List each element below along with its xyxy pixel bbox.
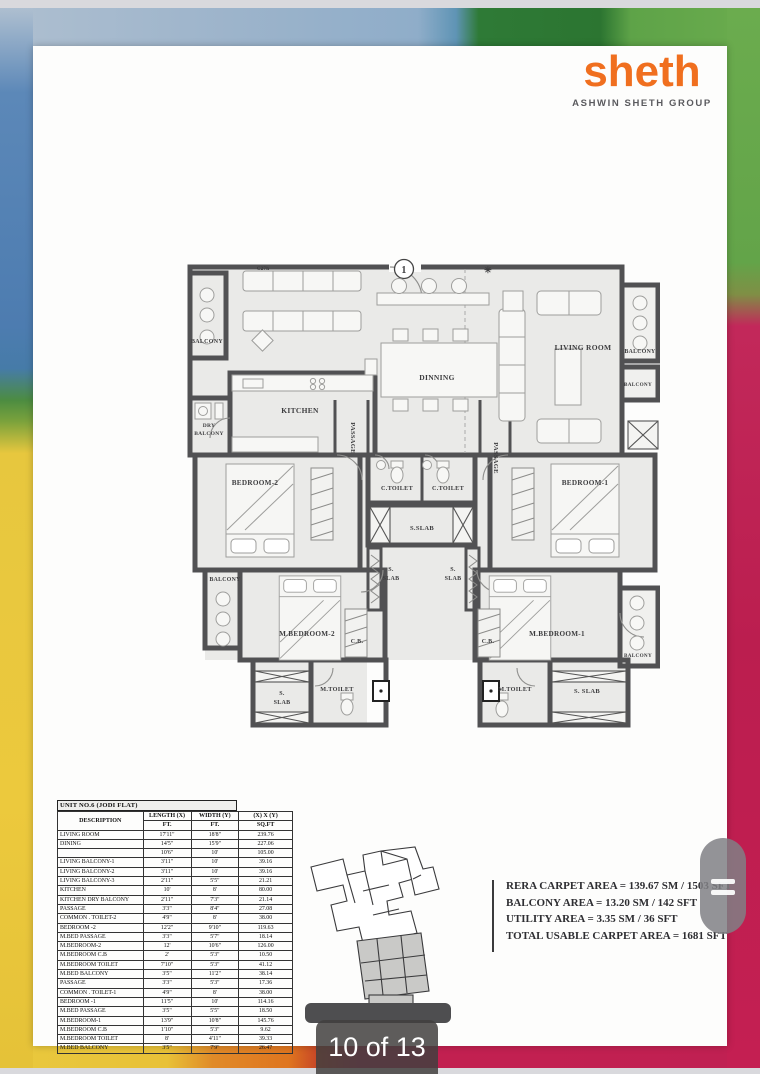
col-area-unit: SQ.FT bbox=[239, 821, 293, 830]
page-indicator: 10 of 13 bbox=[316, 1020, 438, 1074]
handle-bar-icon bbox=[711, 890, 735, 895]
room-label: ✳ bbox=[484, 265, 492, 275]
summary-divider bbox=[492, 880, 494, 952]
key-plan-outline bbox=[311, 847, 439, 943]
floor-plan: 1 bbox=[185, 253, 660, 733]
key-plan bbox=[303, 845, 453, 1023]
table-row: M.BEDROOM-113'9"10'8"145.76 bbox=[58, 1016, 293, 1025]
table-row: M.BED PASSAGE3'5"5'5"18.50 bbox=[58, 1007, 293, 1016]
watercolor-border-left bbox=[0, 8, 33, 1068]
col-width: WIDTH (Y) bbox=[191, 812, 239, 821]
col-description: DESCRIPTION bbox=[58, 812, 144, 831]
summary-line: RERA CARPET AREA = 139.67 SM / 1503 SFT bbox=[506, 878, 718, 895]
col-length-unit: FT. bbox=[143, 821, 191, 830]
room-label: PASSAGE bbox=[349, 422, 356, 454]
table-row: 10'6"10'105.00 bbox=[58, 849, 293, 858]
room-label: DINNING bbox=[419, 373, 454, 382]
room-label: C27h bbox=[257, 267, 270, 272]
room-label: C.TOILET bbox=[381, 485, 414, 492]
table-row: M.BEDROOM TOILET8'4'11"39.33 bbox=[58, 1035, 293, 1044]
room-label: BEDROOM-2 bbox=[232, 479, 279, 487]
table-row: BEDROOM -212'2"9'10"119.63 bbox=[58, 923, 293, 932]
room-label: BALCONY bbox=[209, 577, 241, 583]
viewer-handle-button[interactable] bbox=[700, 838, 746, 934]
room-label: C.B. bbox=[482, 639, 495, 645]
brand-tagline: ASHWIN SHETH GROUP bbox=[563, 98, 721, 109]
table-row: M.BEDROOM C.B2'5'3"10.50 bbox=[58, 951, 293, 960]
room-label: SLAB bbox=[445, 576, 462, 582]
room-label: BALCONY bbox=[194, 431, 224, 437]
room-label: SLAB bbox=[383, 576, 400, 582]
col-width-unit: FT. bbox=[191, 821, 239, 830]
area-table: DESCRIPTION LENGTH (X) WIDTH (Y) (X) X (… bbox=[57, 811, 293, 1054]
room-label: S. bbox=[388, 567, 394, 573]
room-label: PASSAGE bbox=[492, 442, 499, 474]
rera-summary: RERA CARPET AREA = 139.67 SM / 1503 SFTB… bbox=[492, 878, 718, 944]
room-label: S.SLAB bbox=[410, 525, 434, 532]
room-label: BEDROOM-1 bbox=[562, 479, 609, 487]
table-row: LIVING ROOM17'11"18'8"239.76 bbox=[58, 830, 293, 839]
table-row: DINING14'5"15'9"227.06 bbox=[58, 839, 293, 848]
table-row: M.BED BALCONY3'5"11'2"38.14 bbox=[58, 970, 293, 979]
table-row: KITCHEN DRY BALCONY2'11"7'3"21.14 bbox=[58, 895, 293, 904]
summary-line: UTILITY AREA = 3.35 SM / 36 SFT bbox=[506, 911, 718, 928]
room-label: S. SLAB bbox=[574, 688, 600, 695]
room-label: S. bbox=[450, 567, 456, 573]
room-label: DRY bbox=[203, 423, 216, 429]
table-row: BEDROOM -111'5"10'114.16 bbox=[58, 997, 293, 1006]
table-row: LIVING BALCONY-13'11"10'39.16 bbox=[58, 858, 293, 867]
room-label: SLAB bbox=[274, 700, 291, 706]
summary-lines: RERA CARPET AREA = 139.67 SM / 1503 SFTB… bbox=[506, 878, 718, 944]
room-label: BALCONY bbox=[624, 382, 652, 388]
table-row: M.BEDROOM-212'10'6"126.00 bbox=[58, 942, 293, 951]
unit-number: 1 bbox=[401, 265, 406, 276]
handle-bar-icon bbox=[711, 879, 735, 884]
room-label: S. bbox=[279, 691, 285, 697]
table-row: M.BED BALCONY3'5"7'9"26.47 bbox=[58, 1044, 293, 1053]
summary-line: TOTAL USABLE CARPET AREA = 1681 SFT bbox=[506, 928, 718, 945]
table-row: LIVING BALCONY-32'11"5'5"21.21 bbox=[58, 877, 293, 886]
table-row: M.BED PASSAGE3'3"5'7"18.14 bbox=[58, 932, 293, 941]
room-label: BALCONY bbox=[624, 653, 652, 659]
room-label: C.TOILET bbox=[432, 485, 465, 492]
room-label: LIVING ROOM bbox=[555, 343, 612, 352]
room-label: BALCONY bbox=[624, 349, 656, 355]
room-label: C.B. bbox=[351, 639, 364, 645]
area-table-body: LIVING ROOM17'11"18'8"239.76DINING14'5"1… bbox=[58, 830, 293, 1053]
room-label: M.BEDROOM-1 bbox=[529, 630, 585, 638]
table-row: COMMON . TOILET-14'9"8'38.00 bbox=[58, 988, 293, 997]
col-area: (X) X (Y) bbox=[239, 812, 293, 821]
table-title: UNIT NO.6 (JODI FLAT) bbox=[57, 800, 237, 811]
room-label: KITCHEN bbox=[281, 406, 319, 415]
table-row: PASSAGE3'3"5'3"17.36 bbox=[58, 979, 293, 988]
area-statement: UNIT NO.6 (JODI FLAT) DESCRIPTION LENGTH… bbox=[57, 800, 293, 1054]
table-row: KITCHEN10'8'80.00 bbox=[58, 886, 293, 895]
room-label: M.BEDROOM-2 bbox=[279, 630, 335, 638]
room-label: M.TOILET bbox=[498, 686, 532, 693]
key-plan-unit-highlight bbox=[357, 933, 429, 1007]
table-row: LIVING BALCONY-23'11"10'39.16 bbox=[58, 867, 293, 876]
summary-line: BALCONY AREA = 13.20 SM / 142 SFT bbox=[506, 895, 718, 912]
watercolor-border-top bbox=[0, 8, 760, 46]
sheth-logo: sheth bbox=[563, 50, 721, 94]
viewer-stage: sheth ASHWIN SHETH GROUP bbox=[0, 0, 760, 1074]
table-row: M.BEDROOM C.B1'10"5'3"9.62 bbox=[58, 1025, 293, 1034]
table-row: COMMON . TOILET-24'9"8'38.00 bbox=[58, 914, 293, 923]
room-label: BALCONY bbox=[191, 339, 223, 345]
table-row: PASSAGE3'3"8'4"27.08 bbox=[58, 904, 293, 913]
col-length: LENGTH (X) bbox=[143, 812, 191, 821]
table-row: M.BEDROOM TOILET7'10"5'3"41.12 bbox=[58, 960, 293, 969]
room-label: M.TOILET bbox=[320, 686, 354, 693]
brand-block: sheth ASHWIN SHETH GROUP bbox=[563, 50, 721, 109]
